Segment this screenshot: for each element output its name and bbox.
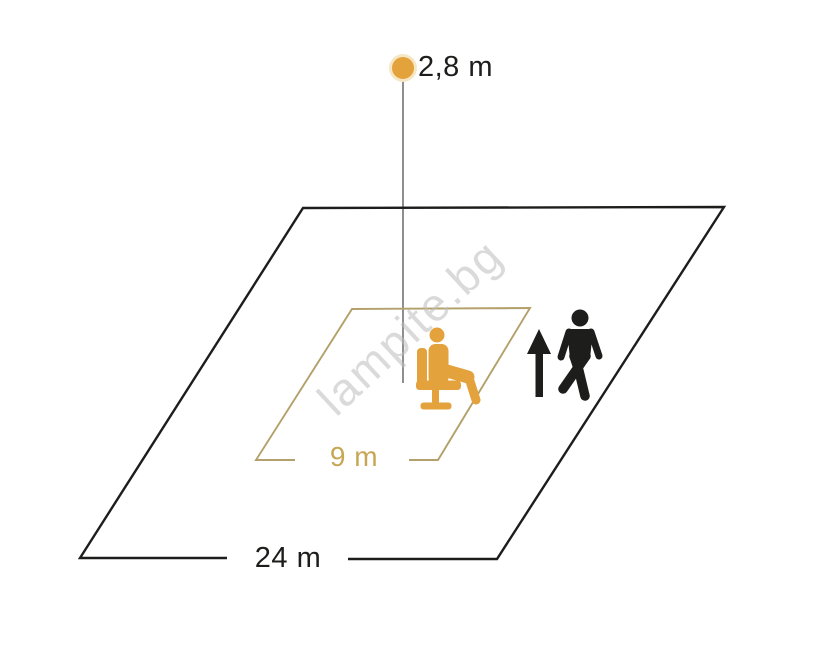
diagram-graphics (0, 0, 813, 649)
inner-zone-outline (256, 308, 530, 460)
seated-person-icon (416, 328, 476, 410)
up-arrow-icon (527, 329, 551, 397)
outer-zone-label: 24 m (255, 542, 321, 574)
inner-zone-label: 9 m (330, 441, 378, 473)
walking-person-icon (561, 310, 599, 397)
sensor-dot-icon (392, 57, 414, 79)
sensor-height-label: 2,8 m (418, 51, 493, 83)
sensor-range-diagram: 2,8 m 9 m 24 m lampite.bg (0, 0, 813, 649)
